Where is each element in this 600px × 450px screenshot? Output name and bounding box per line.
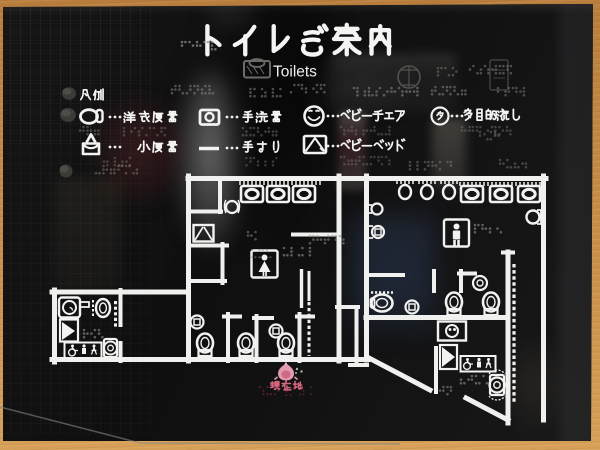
svg-text:Toilets: Toilets (273, 64, 317, 81)
